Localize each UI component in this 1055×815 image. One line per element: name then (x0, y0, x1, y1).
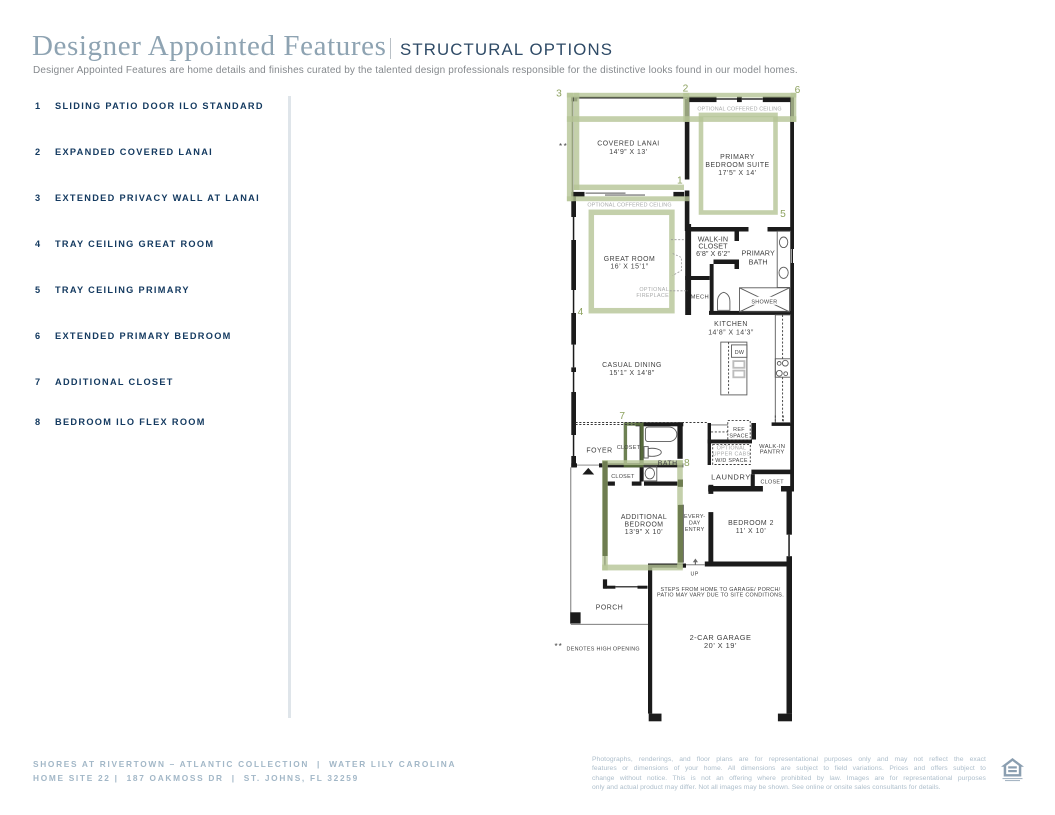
svg-text:4: 4 (578, 307, 584, 318)
svg-text:CLOSET: CLOSET (617, 445, 641, 451)
svg-text:DENOTES HIGH OPENING: DENOTES HIGH OPENING (567, 647, 640, 653)
svg-text:PRIMARY: PRIMARY (742, 248, 775, 257)
svg-text:2: 2 (683, 84, 689, 95)
svg-text:17’5” X 14’: 17’5” X 14’ (718, 170, 756, 177)
svg-text:5: 5 (780, 209, 786, 220)
svg-text:BEDROOM: BEDROOM (624, 522, 663, 529)
svg-text:8: 8 (684, 458, 690, 469)
svg-text:OPTIONAL COFFERED CEILING: OPTIONAL COFFERED CEILING (697, 107, 781, 113)
svg-text:REF: REF (733, 427, 745, 433)
svg-text:ADDITIONAL: ADDITIONAL (621, 514, 667, 521)
svg-text:UP: UP (691, 572, 699, 578)
svg-text:BATH: BATH (749, 257, 768, 266)
svg-text:1: 1 (677, 175, 683, 186)
svg-text:EVERY-: EVERY- (684, 514, 705, 520)
svg-text:COVERED LANAI: COVERED LANAI (597, 141, 659, 148)
svg-text:CLOSET: CLOSET (611, 474, 635, 480)
svg-text:MECH: MECH (691, 295, 709, 301)
svg-text:KITCHEN: KITCHEN (714, 321, 748, 328)
svg-text:CLOSET: CLOSET (761, 480, 785, 486)
svg-text:20’ X 19’: 20’ X 19’ (704, 641, 737, 650)
svg-text:**: ** (559, 142, 568, 151)
svg-text:3: 3 (556, 88, 562, 99)
svg-text:**: ** (555, 642, 563, 651)
svg-text:SPACE: SPACE (729, 433, 748, 439)
svg-text:13’9” X 10’: 13’9” X 10’ (625, 529, 663, 536)
svg-text:FIREPLACE: FIREPLACE (636, 293, 669, 299)
svg-text:FOYER: FOYER (586, 447, 612, 454)
svg-text:ENTRY: ENTRY (685, 527, 705, 533)
svg-text:PANTRY: PANTRY (760, 449, 785, 455)
svg-text:GREAT ROOM: GREAT ROOM (604, 256, 655, 263)
svg-text:DW: DW (735, 350, 745, 356)
svg-text:BEDROOM SUITE: BEDROOM SUITE (705, 162, 769, 169)
svg-text:16’ X 15’1”: 16’ X 15’1” (610, 264, 648, 271)
svg-text:BATH: BATH (658, 460, 678, 467)
svg-text:6: 6 (795, 85, 801, 96)
svg-text:PORCH: PORCH (596, 604, 623, 611)
svg-text:PRIMARY: PRIMARY (720, 154, 755, 161)
svg-text:15’1” X 14’8”: 15’1” X 14’8” (609, 370, 655, 377)
svg-text:OPTIONAL COFFERED CEILING: OPTIONAL COFFERED CEILING (587, 203, 671, 209)
svg-text:LAUNDRY: LAUNDRY (711, 473, 751, 482)
svg-text:W/D SPACE: W/D SPACE (715, 458, 748, 464)
svg-text:PATIO MAY VARY DUE TO SITE CON: PATIO MAY VARY DUE TO SITE CONDITIONS. (657, 593, 784, 599)
svg-text:UPPER CABS: UPPER CABS (713, 452, 751, 458)
svg-text:7: 7 (619, 411, 625, 422)
svg-text:SHOWER: SHOWER (751, 300, 777, 306)
svg-text:BEDROOM 2: BEDROOM 2 (728, 520, 774, 527)
svg-text:11’ X 10’: 11’ X 10’ (736, 528, 767, 535)
svg-text:DAY: DAY (689, 521, 701, 527)
svg-text:CASUAL DINING: CASUAL DINING (602, 362, 662, 369)
svg-text:14’8” X 14’3”: 14’8” X 14’3” (708, 329, 754, 336)
svg-text:14’9” X 13’: 14’9” X 13’ (609, 149, 647, 156)
svg-text:6’8” X 6’2”: 6’8” X 6’2” (696, 249, 730, 258)
